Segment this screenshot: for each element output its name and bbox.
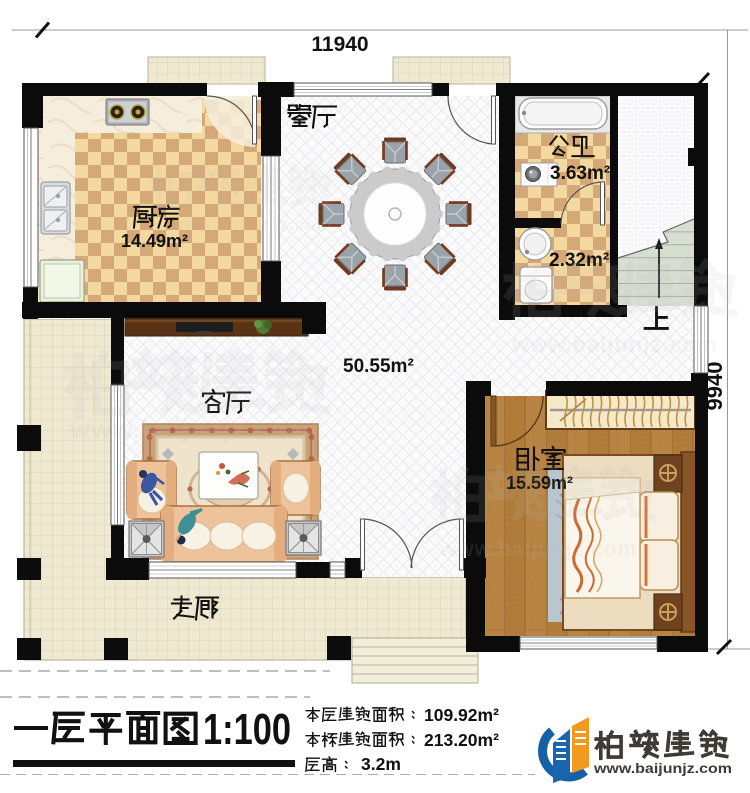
svg-text:3.63m²: 3.63m² bbox=[550, 163, 610, 184]
svg-text:11940: 11940 bbox=[311, 33, 368, 56]
svg-text:www.baijunjz.com: www.baijunjz.com bbox=[593, 760, 732, 776]
svg-text:213.20m²: 213.20m² bbox=[424, 730, 499, 750]
svg-text:3.2m: 3.2m bbox=[361, 754, 401, 774]
svg-text:50.55m²: 50.55m² bbox=[343, 356, 414, 377]
svg-text:www.baijunjz.com: www.baijunjz.com bbox=[169, 215, 333, 234]
svg-text:www.baijunjz.com: www.baijunjz.com bbox=[511, 332, 718, 357]
svg-text:www.baijunjz.com: www.baijunjz.com bbox=[439, 538, 637, 561]
svg-text:www.baijunjz.com: www.baijunjz.com bbox=[69, 414, 310, 444]
svg-text:109.92m²: 109.92m² bbox=[424, 705, 499, 725]
svg-text:14.49m²: 14.49m² bbox=[121, 231, 188, 251]
svg-text:1:100: 1:100 bbox=[203, 705, 291, 754]
